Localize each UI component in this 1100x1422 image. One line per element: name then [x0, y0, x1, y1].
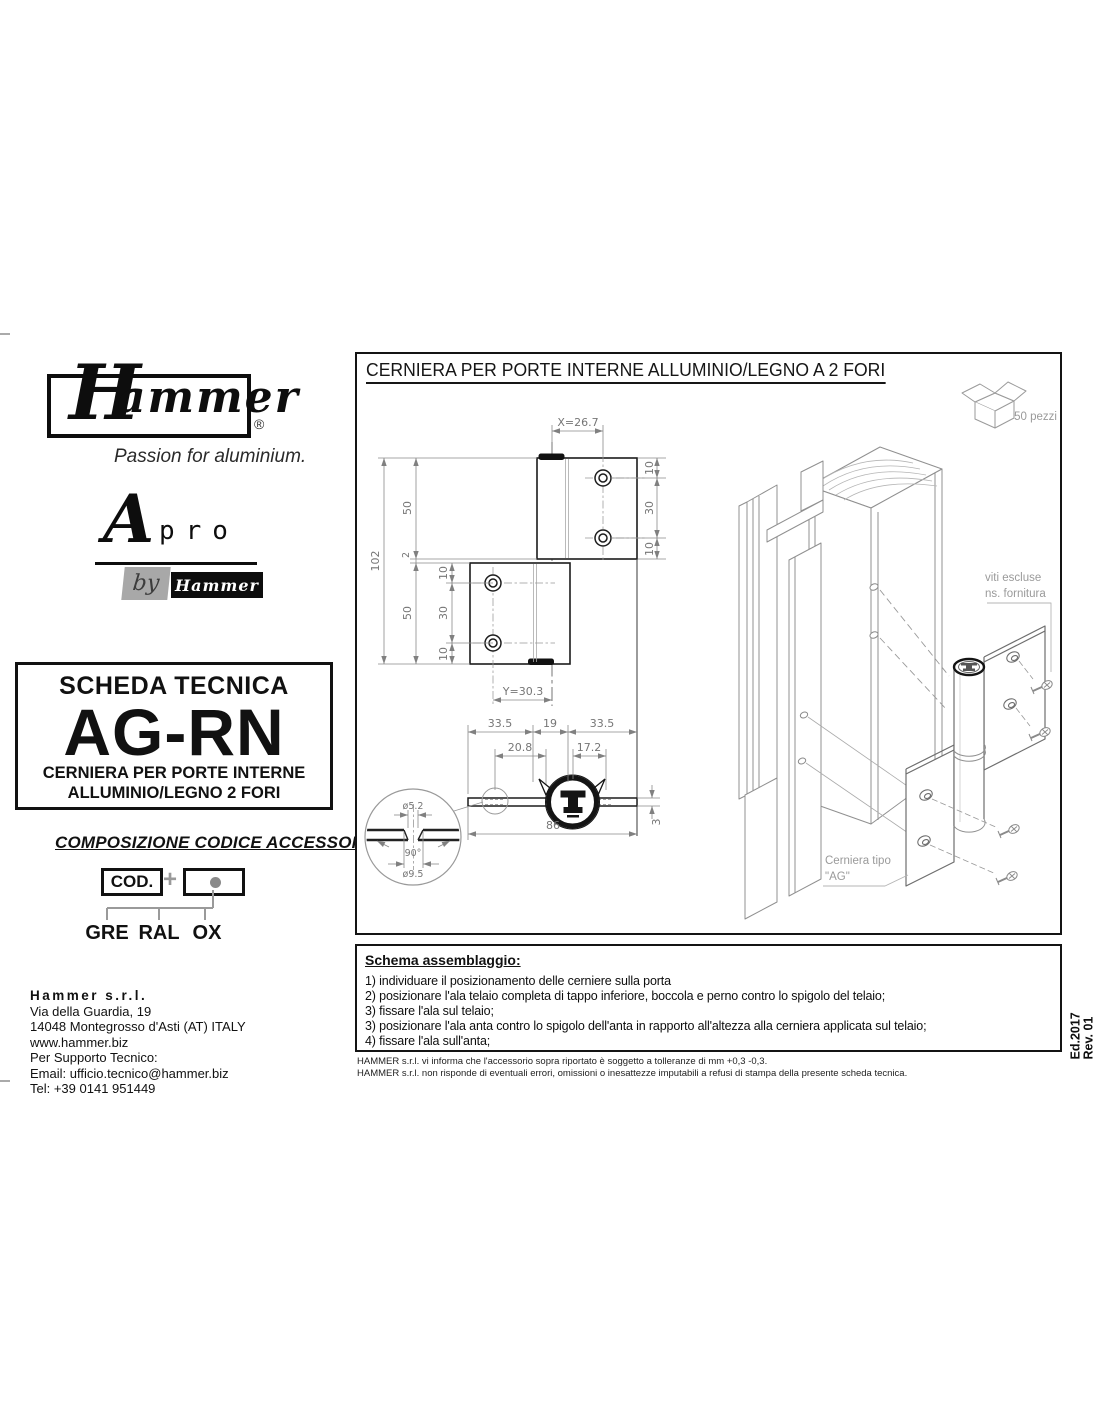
company-street: Via della Guardia, 19 [30, 1004, 246, 1020]
technical-drawing: X=26.7 10 30 10 102 50 2 50 10 30 10 Y=3… [357, 354, 1058, 931]
code-option-ox: OX [182, 922, 232, 945]
assembly-step: 3) fissare l'ala sul telaio; [365, 1004, 1060, 1019]
apro-logo-a: A [103, 480, 154, 558]
dim-y: Y=30.3 [502, 685, 543, 698]
dim-30-b: 30 [437, 606, 450, 620]
dim-30-a: 30 [643, 501, 656, 515]
apro-logo: A pro by Hammer [95, 486, 265, 601]
brand-tagline: Passion for aluminium. [114, 446, 306, 468]
hinge-type-line2: "AG" [825, 871, 850, 883]
company-phone: Tel: +39 0141 951449 [30, 1081, 246, 1097]
product-subtitle-1: CERNIERA PER PORTE INTERNE [18, 763, 330, 783]
dim-countersink-dia: ø9.5 [403, 869, 424, 880]
screw-icon [998, 823, 1021, 838]
page: H ammer ® Passion for aluminium. A pro b… [0, 0, 1100, 1422]
hammer-logo-rest: ammer [117, 372, 300, 423]
screws-note-line1: viti escluse [985, 572, 1041, 584]
dim-10-d: 10 [437, 647, 450, 661]
lower-end-cap [528, 659, 554, 666]
disclaimer-line1: HAMMER s.r.l. vi informa che l'accessori… [357, 1056, 907, 1068]
company-email: Email: ufficio.tecnico@hammer.biz [30, 1066, 246, 1082]
dim-50-b: 50 [401, 606, 414, 620]
top-view: 33.5 19 33.5 20.8 17.2 86 3 [468, 717, 663, 840]
code-composition-diagram: COD. + GRE RAL OX [95, 865, 275, 955]
support-label: Per Supporto Tecnico: [30, 1050, 246, 1066]
assembly-step: 2) posizionare l'ala telaio completa di … [365, 989, 1060, 1004]
hammer-logo: H ammer [47, 374, 251, 438]
assembly-box: Schema assemblaggio: 1) individuare il p… [355, 944, 1062, 1052]
screws-note-line2: ns. fornitura [985, 588, 1046, 600]
lower-leaf [470, 563, 570, 664]
technical-drawing-box: X=26.7 10 30 10 102 50 2 50 10 30 10 Y=3… [355, 352, 1062, 935]
dim-3: 3 [650, 819, 663, 826]
dim-10-a: 10 [643, 461, 656, 475]
disclaimer-line2: HAMMER s.r.l. non risponde di eventuali … [357, 1068, 907, 1080]
assembly-step: 4) fissare l'ala sull'anta; [365, 1034, 1060, 1049]
assembly-title: Schema assemblaggio: [365, 952, 1060, 968]
hinge-type-line1: Cerniera tipo [825, 855, 891, 867]
hinge-barrel [954, 659, 985, 832]
crop-mark [0, 333, 10, 335]
product-subtitle-2: ALLUMINIO/LEGNO 2 FORI [18, 783, 330, 803]
apro-logo-underline [95, 562, 257, 565]
drawing-title: CERNIERA PER PORTE INTERNE ALLUMINIO/LEG… [366, 359, 885, 384]
dim-10-c: 10 [437, 566, 450, 580]
crop-mark [0, 1080, 10, 1082]
company-name: Hammer s.r.l. [30, 988, 246, 1004]
product-code: AG-RN [18, 701, 330, 763]
dim-102: 102 [369, 551, 382, 572]
front-view: X=26.7 10 30 10 102 50 2 50 10 30 10 Y=3… [369, 416, 666, 836]
dim-x: X=26.7 [557, 416, 598, 429]
edition-revision: Ed.2017 Rev. 01 [1070, 985, 1096, 1060]
dim-2: 2 [401, 552, 412, 558]
isometric-view: viti escluse ns. fornitura Cerniera tipo… [739, 447, 1054, 919]
dim-10-b: 10 [643, 542, 656, 556]
company-website: www.hammer.biz [30, 1035, 246, 1051]
dim-33-5-a: 33.5 [488, 717, 513, 730]
assembly-step: 3) posizionare l'ala anta contro lo spig… [365, 1019, 1060, 1034]
apro-logo-by: by [121, 567, 170, 600]
dim-20-8: 20.8 [508, 741, 533, 754]
apro-logo-pro: pro [159, 516, 239, 546]
dim-50-a: 50 [401, 501, 414, 515]
package-qty: 50 pezzi [1014, 411, 1057, 423]
company-address-block: Hammer s.r.l. Via della Guardia, 19 1404… [30, 988, 246, 1097]
dim-17-2: 17.2 [577, 741, 602, 754]
assembly-step: 1) individuare il posizionamento delle c… [365, 974, 1060, 989]
apro-logo-by-brand: Hammer [171, 572, 263, 598]
dim-86: 86 [546, 819, 560, 832]
dim-angle: 90° [405, 848, 422, 859]
detail-view: ø5.2 90° ø9.5 [365, 789, 483, 885]
registered-mark: ® [254, 416, 264, 432]
dim-hole-dia: ø5.2 [403, 801, 424, 812]
code-option-ral: RAL [134, 922, 184, 945]
dim-33-5-b: 33.5 [590, 717, 615, 730]
revision-label: Rev. 01 [1083, 985, 1096, 1060]
tech-sheet-box: SCHEDA TECNICA AG-RN CERNIERA PER PORTE … [15, 662, 333, 810]
code-option-gre: GRE [82, 922, 132, 945]
accessories-code-title: COMPOSIZIONE CODICE ACCESSORI [55, 833, 369, 853]
screw-icon [996, 870, 1019, 885]
upper-leaf [537, 458, 637, 559]
hinge-upper-leaf [984, 626, 1045, 770]
disclaimer: HAMMER s.r.l. vi informa che l'accessori… [357, 1056, 907, 1079]
upper-end-cap [539, 454, 565, 461]
company-city: 14048 Montegrosso d'Asti (AT) ITALY [30, 1019, 246, 1035]
dim-19: 19 [543, 717, 557, 730]
